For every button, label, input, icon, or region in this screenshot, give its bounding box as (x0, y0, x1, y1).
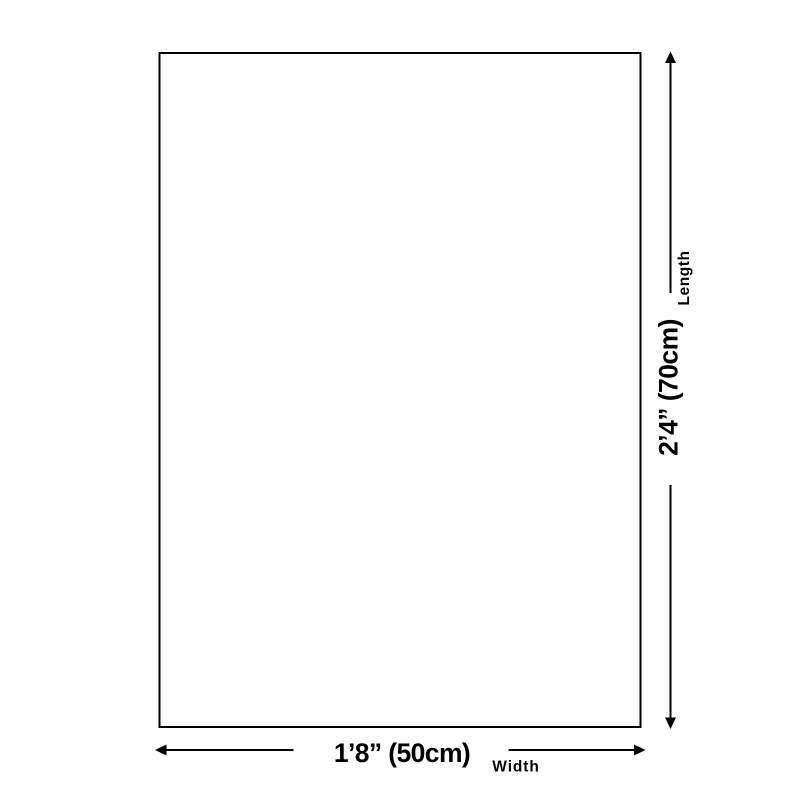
svg-text:Width: Width (492, 759, 539, 776)
svg-text:2’4” (70cm): 2’4” (70cm) (654, 319, 684, 456)
svg-text:1’8” (50cm): 1’8” (50cm) (334, 738, 470, 768)
svg-text:Length: Length (676, 251, 693, 306)
